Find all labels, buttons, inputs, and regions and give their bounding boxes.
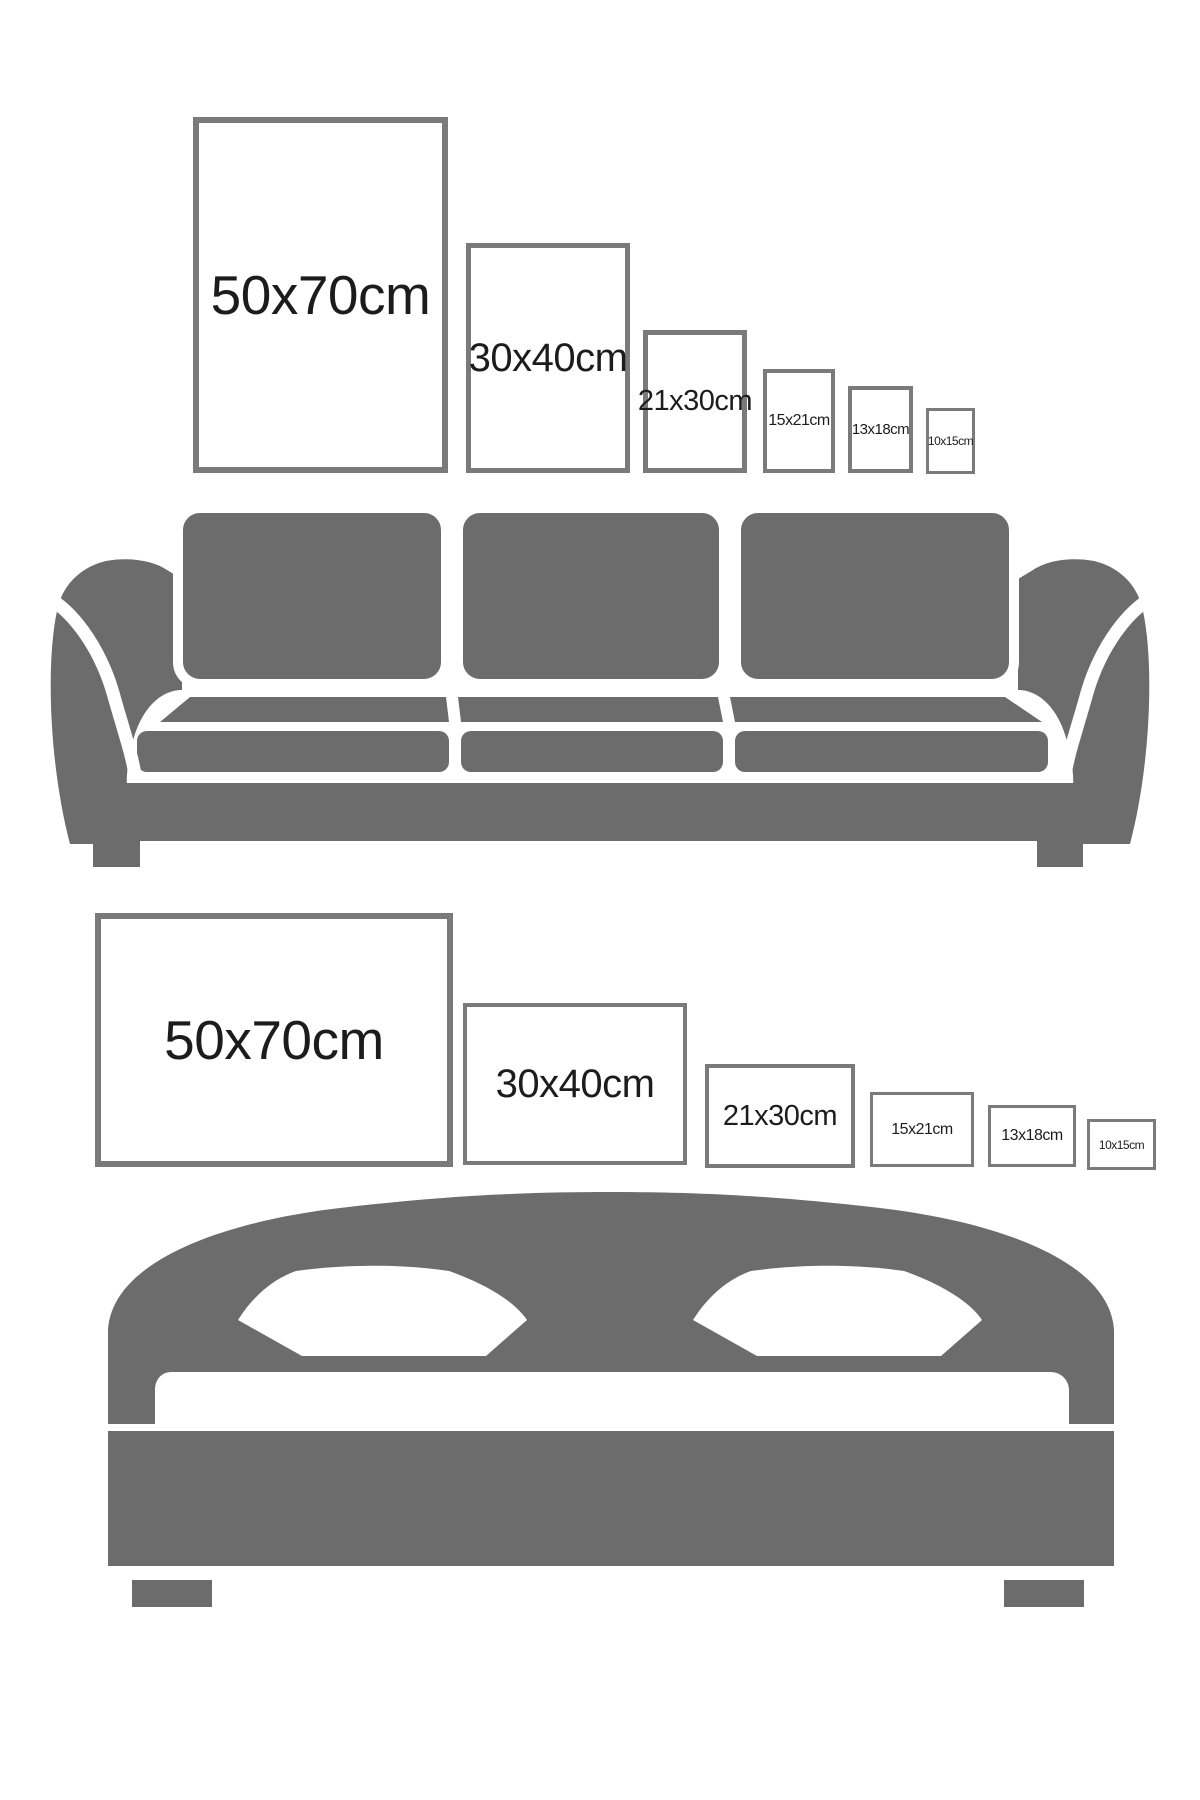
size-label: 21x30cm [723, 1100, 837, 1133]
size-frame-50x70-portrait: 50x70cm [193, 117, 448, 473]
size-label: 13x18cm [852, 421, 909, 438]
sofa-back-cushion [736, 508, 1014, 684]
size-frame-13x18-landscape: 13x18cm [988, 1105, 1076, 1167]
size-frame-50x70-landscape: 50x70cm [95, 913, 453, 1167]
size-frame-21x30-landscape: 21x30cm [705, 1064, 855, 1168]
size-frame-30x40-portrait: 30x40cm [466, 243, 630, 473]
bed-illustration [60, 1185, 1160, 1615]
bed-base [108, 1431, 1114, 1566]
sofa-base [120, 783, 1080, 841]
sofa-seat-cushion [461, 731, 723, 772]
size-label: 10x15cm [1099, 1138, 1144, 1152]
size-label: 50x70cm [164, 1008, 384, 1072]
size-label: 30x40cm [496, 1062, 655, 1107]
sofa-seat-deck [160, 697, 449, 722]
sofa-back-cushion [178, 508, 446, 684]
poster-size-guide: { "colors": { "background": "#ffffff", "… [0, 0, 1200, 1800]
bed-foot-right [1004, 1580, 1084, 1607]
size-label: 21x30cm [638, 385, 752, 418]
bed-foot-left [132, 1580, 212, 1607]
sofa-seat-deck [458, 697, 723, 722]
size-label: 13x18cm [1001, 1127, 1062, 1145]
size-label: 30x40cm [469, 336, 628, 381]
size-label: 10x15cm [928, 434, 973, 448]
sofa-seat-cushion [735, 731, 1048, 772]
size-label: 15x21cm [768, 412, 829, 430]
size-frame-21x30-portrait: 21x30cm [643, 330, 747, 473]
size-frame-15x21-landscape: 15x21cm [870, 1092, 974, 1167]
sofa-foot-left [93, 841, 140, 867]
sofa-foot-right [1037, 841, 1083, 867]
size-label: 50x70cm [211, 263, 431, 327]
sofa-illustration [40, 500, 1160, 875]
sofa-back-cushion [458, 508, 724, 684]
size-frame-13x18-portrait: 13x18cm [848, 386, 913, 473]
size-frame-10x15-landscape: 10x15cm [1087, 1119, 1156, 1170]
size-label: 15x21cm [891, 1121, 952, 1139]
sofa-seat-cushion [137, 731, 449, 772]
size-frame-30x40-landscape: 30x40cm [463, 1003, 687, 1165]
sofa-seat-deck [730, 697, 1042, 722]
size-frame-10x15-portrait: 10x15cm [926, 408, 975, 474]
size-frame-15x21-portrait: 15x21cm [763, 369, 835, 473]
